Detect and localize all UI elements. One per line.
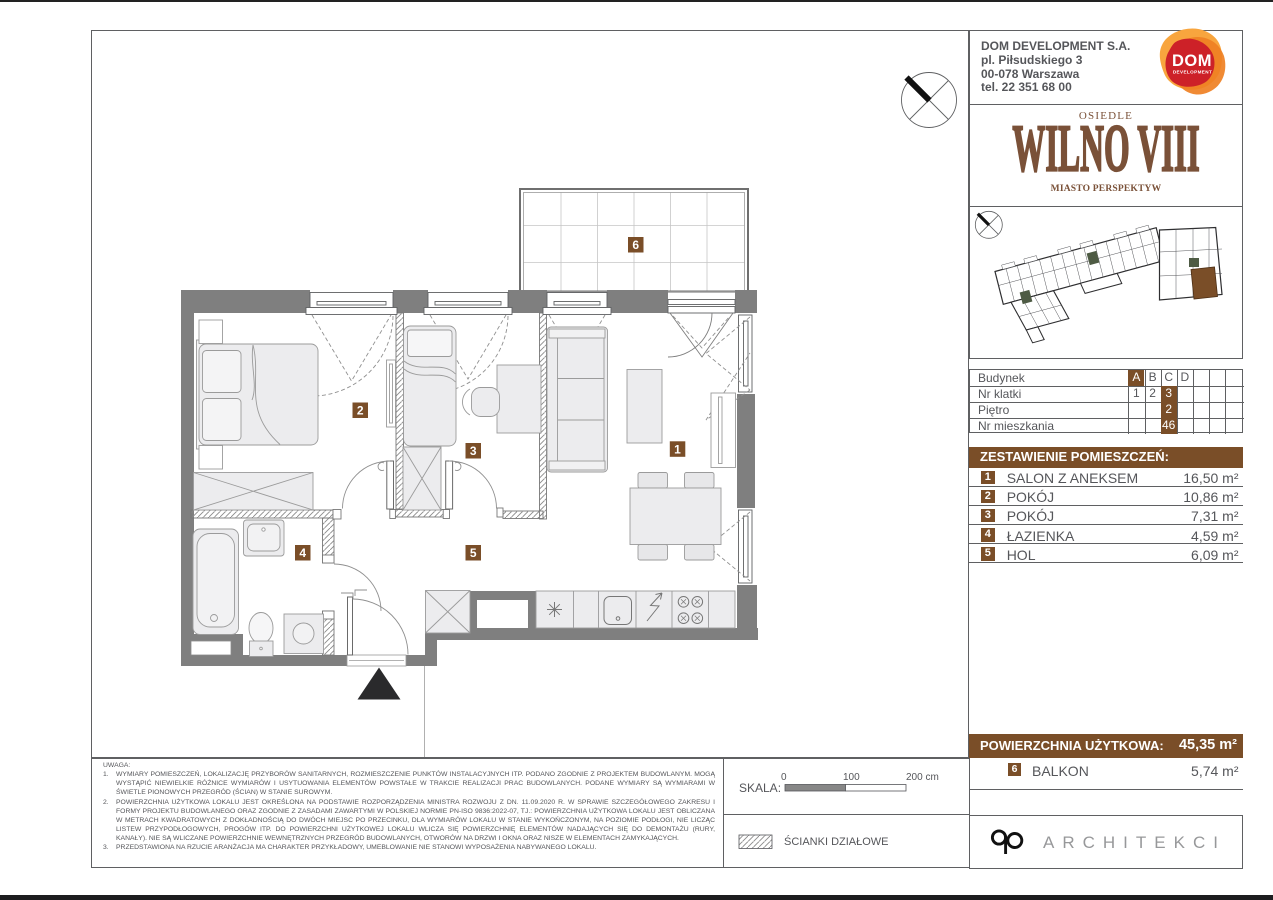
svg-text:4: 4 [299,546,306,560]
svg-text:DEVELOPMENT: DEVELOPMENT [1173,70,1212,75]
svg-text:DOM: DOM [1172,52,1212,70]
svg-text:5: 5 [470,546,477,560]
svg-text:3: 3 [470,444,477,458]
svg-text:1: 1 [674,443,681,457]
svg-text:2: 2 [357,404,364,418]
svg-text:6: 6 [632,238,639,252]
